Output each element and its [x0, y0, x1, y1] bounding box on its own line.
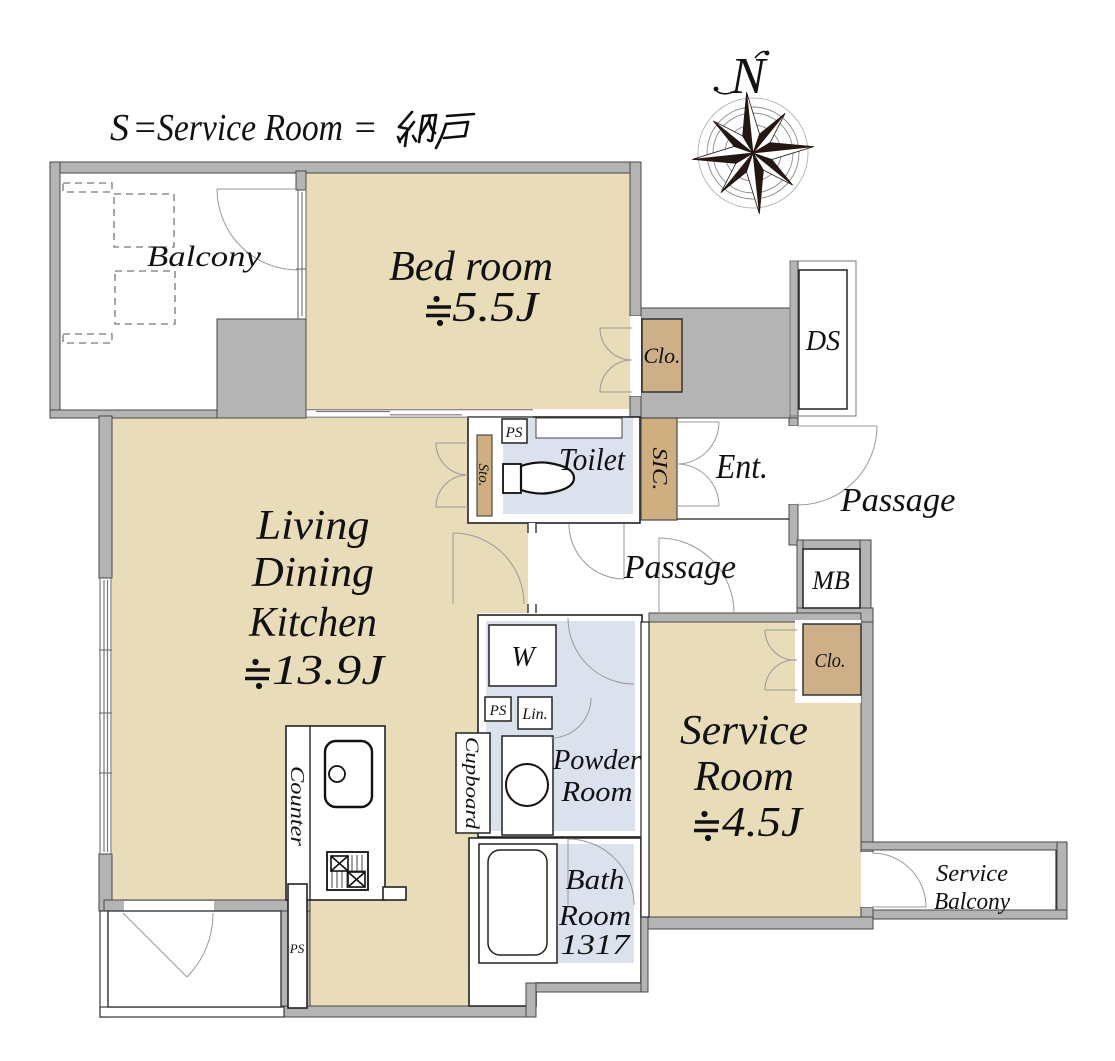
svg-text:Living: Living — [255, 503, 369, 549]
svg-text:5.5J: 5.5J — [452, 285, 541, 331]
svg-text:Balcony: Balcony — [147, 240, 262, 273]
svg-text:Room: Room — [693, 754, 794, 800]
svg-text:Dining: Dining — [251, 550, 374, 596]
svg-text:Passage: Passage — [623, 549, 736, 586]
svg-text:W: W — [511, 642, 537, 673]
svg-text:Cupboard: Cupboard — [461, 737, 482, 830]
svg-text:Clo.: Clo. — [815, 650, 846, 672]
svg-text:MB: MB — [811, 566, 850, 595]
svg-text:Counter: Counter — [286, 766, 308, 846]
svg-text:PS: PS — [505, 425, 523, 441]
svg-text:Balcony: Balcony — [934, 889, 1010, 915]
svg-text:Toilet: Toilet — [559, 441, 626, 477]
svg-text:Bath: Bath — [566, 864, 625, 896]
svg-text:DS: DS — [805, 326, 840, 357]
svg-text:=: = — [132, 107, 158, 149]
svg-text:Passage: Passage — [839, 482, 955, 519]
svg-text:13.9J: 13.9J — [272, 648, 387, 694]
svg-text:1317: 1317 — [561, 929, 632, 961]
svg-text:=: = — [352, 107, 378, 149]
svg-text:Ent.: Ent. — [715, 447, 768, 486]
svg-text:PS: PS — [489, 703, 507, 719]
svg-text:S: S — [110, 107, 129, 149]
svg-text:Bed room: Bed room — [389, 244, 553, 290]
svg-text:Powder: Powder — [552, 745, 641, 776]
svg-text:SIC.: SIC. — [648, 448, 672, 491]
svg-text:Sto.: Sto. — [475, 464, 491, 487]
svg-text:Lin.: Lin. — [521, 706, 547, 723]
svg-text:4.5J: 4.5J — [722, 800, 805, 846]
svg-text:Room: Room — [558, 900, 631, 932]
svg-text:PS: PS — [289, 941, 305, 956]
svg-text:Room: Room — [560, 777, 632, 808]
svg-text:Service Room: Service Room — [157, 107, 343, 149]
svg-text:Service: Service — [936, 861, 1008, 887]
svg-text:Clo.: Clo. — [644, 343, 681, 368]
svg-text:Service: Service — [680, 708, 808, 754]
svg-text:N: N — [730, 48, 769, 105]
svg-text:Kitchen: Kitchen — [248, 600, 377, 646]
